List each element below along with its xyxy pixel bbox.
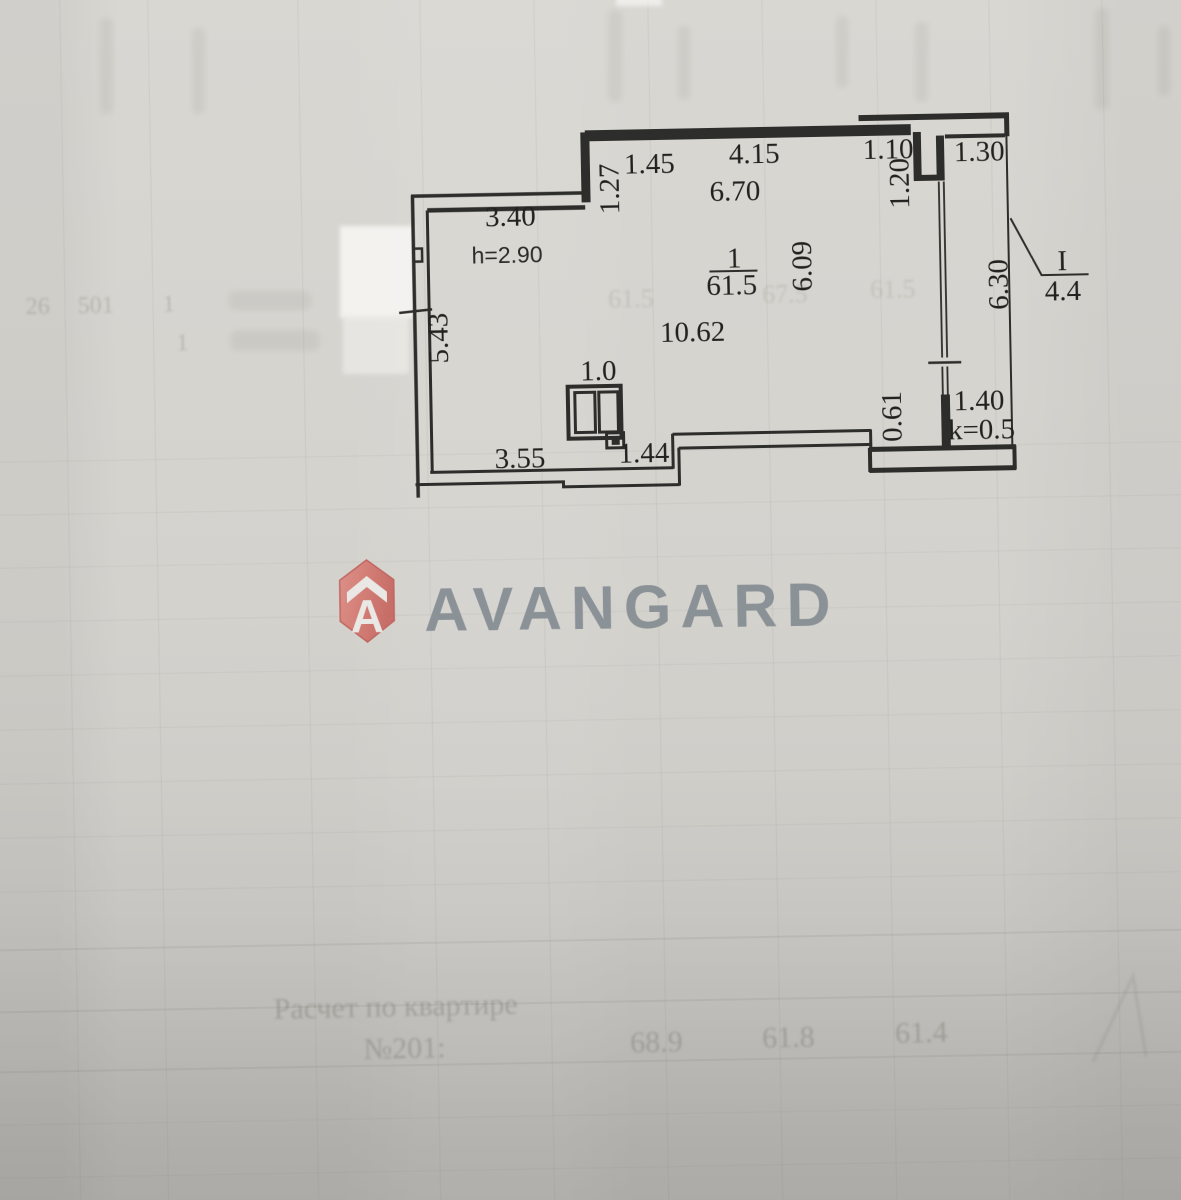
wall-left-outer — [412, 196, 418, 498]
dim-room-depth-right: 6.09 — [786, 241, 819, 292]
wall-bottom-step-inner — [673, 434, 674, 469]
bleed-calc-value: 61.8 — [762, 1021, 815, 1055]
dim-bottom-left-wall: 3.55 — [494, 442, 545, 475]
page-canvas: 26 501 1 1 61.5 67.5 61.5 Расчет по квар… — [0, 0, 1181, 1200]
bleed-num: 61.5 — [870, 274, 916, 304]
room-area: 61.5 — [706, 269, 757, 302]
window-tick — [928, 362, 961, 363]
bleed-num: 1 — [176, 330, 188, 356]
dim-bottom-step: 1.44 — [618, 437, 670, 470]
wall-bottom-left-outer — [415, 480, 679, 490]
dim-room-width: 10.62 — [660, 316, 726, 349]
dim-bottom-right-offset: 0.61 — [876, 391, 909, 442]
dim-upper-left-wall: 3.40 — [485, 200, 536, 233]
wall-340-outer — [411, 193, 590, 196]
bleed-num: 61.5 — [608, 284, 654, 314]
scanned-page: 26 501 1 1 61.5 67.5 61.5 Расчет по квар… — [0, 0, 1181, 1200]
dim-top-window: 4.15 — [729, 138, 780, 171]
wall-block-bottom — [869, 468, 1016, 471]
logo: A AVANGARD — [339, 553, 840, 645]
balcony-coefficient: k=0.5 — [948, 413, 1016, 446]
dim-balcony-width: 1.30 — [954, 135, 1005, 168]
floor-plan: 1.45 4.15 1.10 1.30 6.70 1.27 1.20 3.40 … — [396, 111, 1093, 498]
wall-stub — [945, 394, 946, 448]
wall-top-outer-step — [859, 115, 1009, 118]
bleed-calc-value: 61.4 — [895, 1016, 948, 1050]
bleed-calc-number: №201: — [363, 1031, 446, 1066]
dim-top-left-offset: 1.45 — [624, 148, 675, 181]
dim-balcony-depth: 6.30 — [982, 259, 1015, 310]
bleed-num: 1 — [162, 291, 174, 317]
dim-vent-width: 1.0 — [580, 355, 617, 388]
wall-pier-left — [917, 132, 918, 179]
bleed-num: 501 — [78, 293, 114, 320]
wall-pier-right — [940, 136, 941, 179]
dim-pier-depth: 1.20 — [883, 158, 916, 209]
brand-house-badge-icon: A — [339, 560, 394, 643]
badge-letter: A — [350, 590, 384, 642]
dim-top-total: 6.70 — [709, 175, 760, 208]
wall-bottom-step-outer — [679, 448, 680, 486]
vent-duct-left — [575, 392, 596, 432]
bleed-calc-value: 68.9 — [630, 1025, 683, 1059]
balcony-leader — [1010, 217, 1088, 276]
bleed-num: 26 — [26, 294, 50, 320]
dim-left-wall: 5.43 — [422, 313, 455, 364]
wall-bottom-mid-inner — [673, 430, 872, 434]
dim-balcony-door: 1.40 — [953, 384, 1004, 417]
bleed-calc-title: Расчет по квартире — [273, 988, 518, 1026]
brand-name: AVANGARD — [424, 570, 840, 644]
balcony-area: 4.4 — [1044, 275, 1081, 308]
dim-left-riser: 1.27 — [593, 163, 626, 214]
wall-pier-bottom — [914, 177, 945, 178]
vent-duct-right — [599, 392, 619, 432]
ceiling-height-note: h=2.90 — [471, 241, 542, 268]
balcony-label: I — [1057, 245, 1067, 277]
